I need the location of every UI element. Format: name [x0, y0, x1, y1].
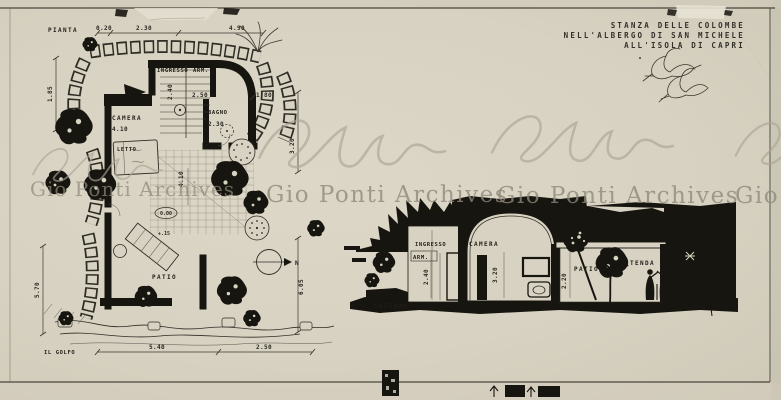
dim-top-1: 0.20 — [96, 25, 112, 32]
room-label-ingresso: INGRESSO — [157, 68, 188, 74]
section-title: SEZIONE — [374, 303, 409, 310]
section-label-arm: ARM. — [413, 255, 429, 261]
room-label-arm: ARM. — [193, 68, 209, 74]
title-line-3: ALL'ISOLA DI CAPRI — [624, 41, 745, 50]
film-mark — [538, 386, 560, 397]
tape-smudge — [223, 8, 240, 15]
tape-mark — [676, 5, 726, 19]
dim-bottom-2: 2.50 — [256, 344, 272, 351]
room-label-letto: LETTO — [117, 147, 137, 153]
tape-smudge — [724, 10, 733, 16]
section-door — [447, 253, 459, 300]
section-label-tenda: TENDA — [630, 260, 655, 267]
north-label: N — [295, 260, 300, 267]
patio-bench — [125, 223, 178, 271]
dim-door: 1.80 — [256, 92, 272, 99]
drawing-canvas: STANZA DELLE COLOMBE NELL'ALBERGO DI SAN… — [0, 0, 781, 400]
section-window — [523, 258, 549, 276]
level-step: +.15 — [158, 231, 170, 237]
dim-right-upper: 3.20 — [289, 138, 296, 154]
room-label-camera: CAMERA — [112, 115, 142, 122]
section-label-ingresso: INGRESSO — [415, 242, 446, 248]
scanned-drawing-sheet: STANZA DELLE COLOMBE NELL'ALBERGO DI SAN… — [0, 0, 781, 400]
stair-hatch — [160, 66, 210, 138]
garden-table — [245, 216, 269, 240]
section-dim-camera: 3.20 — [492, 267, 499, 283]
door-leaf — [477, 255, 487, 300]
tape-smudge — [667, 9, 677, 16]
north-arrow-icon: N — [253, 250, 300, 275]
room-label-patio: PATIO — [152, 274, 177, 281]
watermark-text: Gio Ponti Archives — [497, 183, 739, 209]
coast-label: IL GOLFO — [44, 350, 75, 356]
patio-stool — [114, 245, 127, 258]
wc-fixture — [528, 282, 550, 297]
title-line-1: STANZA DELLE COLOMBE — [611, 21, 745, 30]
section-label-patio: PATIO — [574, 266, 599, 273]
section-dim-patio: 2.20 — [561, 273, 568, 289]
tape-smudge — [115, 9, 128, 17]
title-block: STANZA DELLE COLOMBE NELL'ALBERGO DI SAN… — [564, 21, 745, 102]
level-zero: 0.00 — [160, 211, 172, 217]
section-label-camera: CAMERA — [469, 241, 499, 248]
section-drawing: INGRESSO ARM. CAMERA PATIO TENDA 2.40 3.… — [344, 196, 738, 316]
dim-bottom-1: 5.40 — [149, 344, 165, 351]
dim-left-upper: 1.85 — [47, 86, 54, 102]
dove-sketch-icon — [643, 48, 708, 102]
plan-title: PIANTA — [48, 27, 78, 34]
watermark-text: Gio Ponti Archives — [266, 182, 508, 208]
watermark-text: Gio Ponti Archives — [30, 177, 235, 201]
dim-bagno-width: 2.30 — [208, 121, 224, 128]
film-mark — [382, 370, 399, 396]
watermark-text: Gio Ponti Archives — [735, 183, 781, 209]
dim-left-lower: 5.70 — [34, 282, 41, 298]
room-label-bagno: BAGNO — [208, 110, 228, 116]
dim-top-2: 2.30 — [136, 25, 152, 32]
dim-stair: 2.40 — [167, 84, 174, 100]
film-mark — [505, 385, 525, 397]
dim-right-lower: 6.05 — [298, 279, 305, 295]
dim-arm-width: 2.50 — [192, 92, 208, 99]
title-line-2: NELL'ALBERGO DI SAN MICHELE — [564, 31, 745, 40]
section-dim-ingresso: 2.40 — [423, 269, 430, 285]
dim-camera-width: 4.10 — [112, 126, 128, 133]
